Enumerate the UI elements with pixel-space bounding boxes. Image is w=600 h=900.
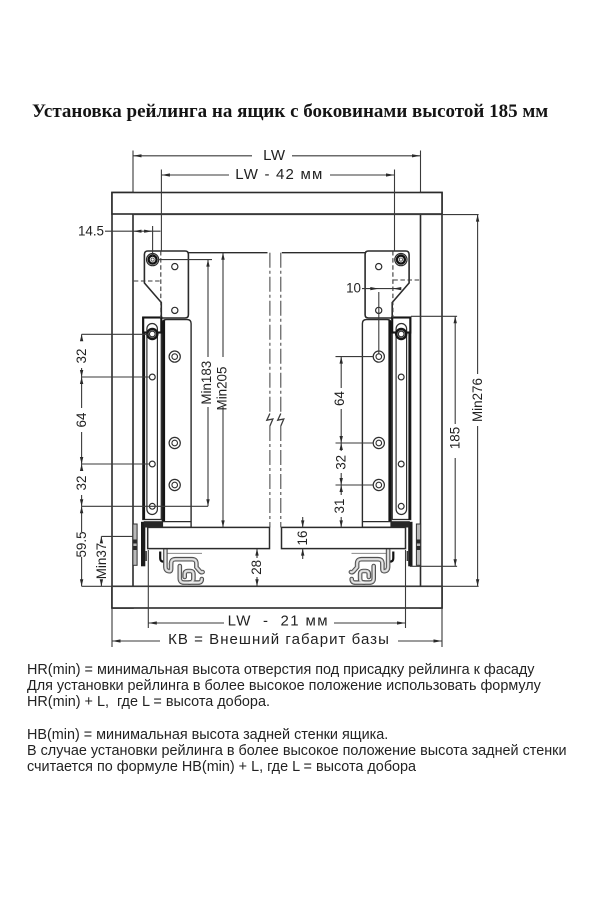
- svg-text:32: 32: [74, 476, 89, 491]
- svg-text:31: 31: [332, 499, 347, 514]
- svg-text:LW: LW: [263, 147, 286, 164]
- svg-text:185: 185: [447, 427, 462, 449]
- svg-text:59.5: 59.5: [74, 531, 89, 557]
- svg-text:14.5: 14.5: [78, 223, 104, 238]
- svg-text:Min37: Min37: [94, 543, 109, 579]
- svg-text:Min183: Min183: [199, 361, 214, 405]
- svg-text:64: 64: [74, 412, 89, 427]
- svg-text:10: 10: [346, 281, 361, 296]
- svg-text:32: 32: [74, 349, 89, 364]
- svg-text:LW - 21 мм: LW - 21 мм: [228, 613, 329, 630]
- svg-text:64: 64: [332, 391, 347, 406]
- svg-text:LW - 42 мм: LW - 42 мм: [235, 166, 323, 183]
- svg-text:Min205: Min205: [215, 367, 230, 411]
- svg-text:КВ = Внешний габарит базы: КВ = Внешний габарит базы: [168, 631, 390, 648]
- svg-text:32: 32: [334, 455, 349, 470]
- svg-text:16: 16: [295, 531, 310, 546]
- svg-text:Min276: Min276: [470, 378, 485, 422]
- svg-text:28: 28: [249, 560, 264, 575]
